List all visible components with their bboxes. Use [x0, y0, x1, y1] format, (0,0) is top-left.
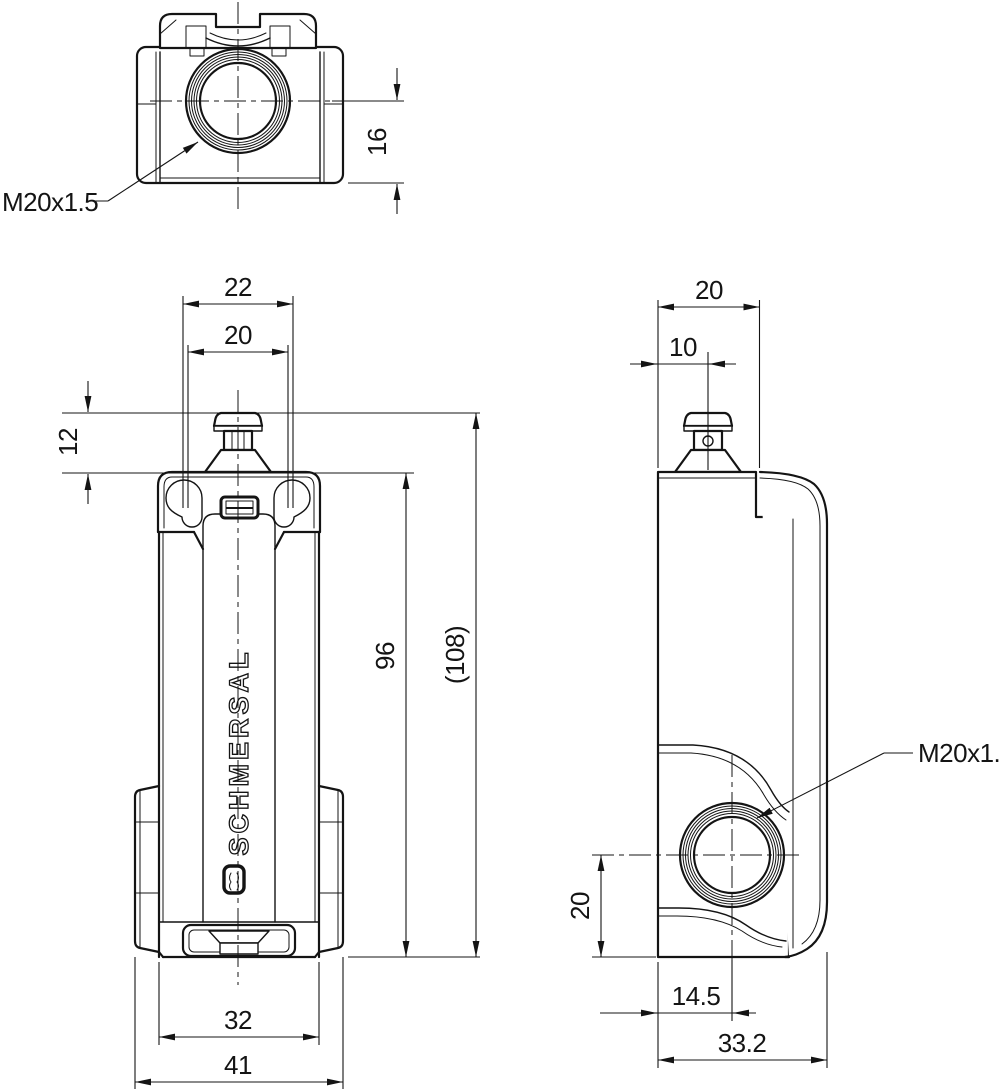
- dim-16-value: 16: [362, 128, 392, 156]
- dim-33-2-value: 33.2: [718, 1028, 767, 1058]
- thread-size-label-top: M20x1.5: [2, 187, 98, 217]
- safety-switch-dimension-drawing: 16 M20x1.5: [0, 0, 1000, 1089]
- dim-14-5-value: 14.5: [672, 981, 721, 1011]
- schmersal-logo-mark: [224, 866, 244, 893]
- front-view-branding: SCHMERSAL: [224, 648, 254, 893]
- dim-10-value: 10: [669, 332, 697, 362]
- dim-12-value: 12: [53, 428, 83, 456]
- schmersal-logo-text: SCHMERSAL: [224, 648, 254, 855]
- dim-20-side-left-value: 20: [565, 892, 595, 920]
- thread-size-label-side: M20x1.5: [918, 738, 1000, 768]
- dim-20-side-top-value: 20: [695, 275, 723, 305]
- technical-drawing-page: 16 M20x1.5: [0, 0, 1000, 1089]
- dim-96-value: 96: [370, 642, 400, 670]
- top-view-outline: [137, 14, 343, 183]
- dim-108-value: (108): [440, 626, 470, 684]
- dim-22-value: 22: [224, 272, 252, 302]
- dim-41-value: 41: [224, 1050, 252, 1080]
- dim-32-value: 32: [224, 1005, 252, 1035]
- dim-20-front-value: 20: [224, 320, 252, 350]
